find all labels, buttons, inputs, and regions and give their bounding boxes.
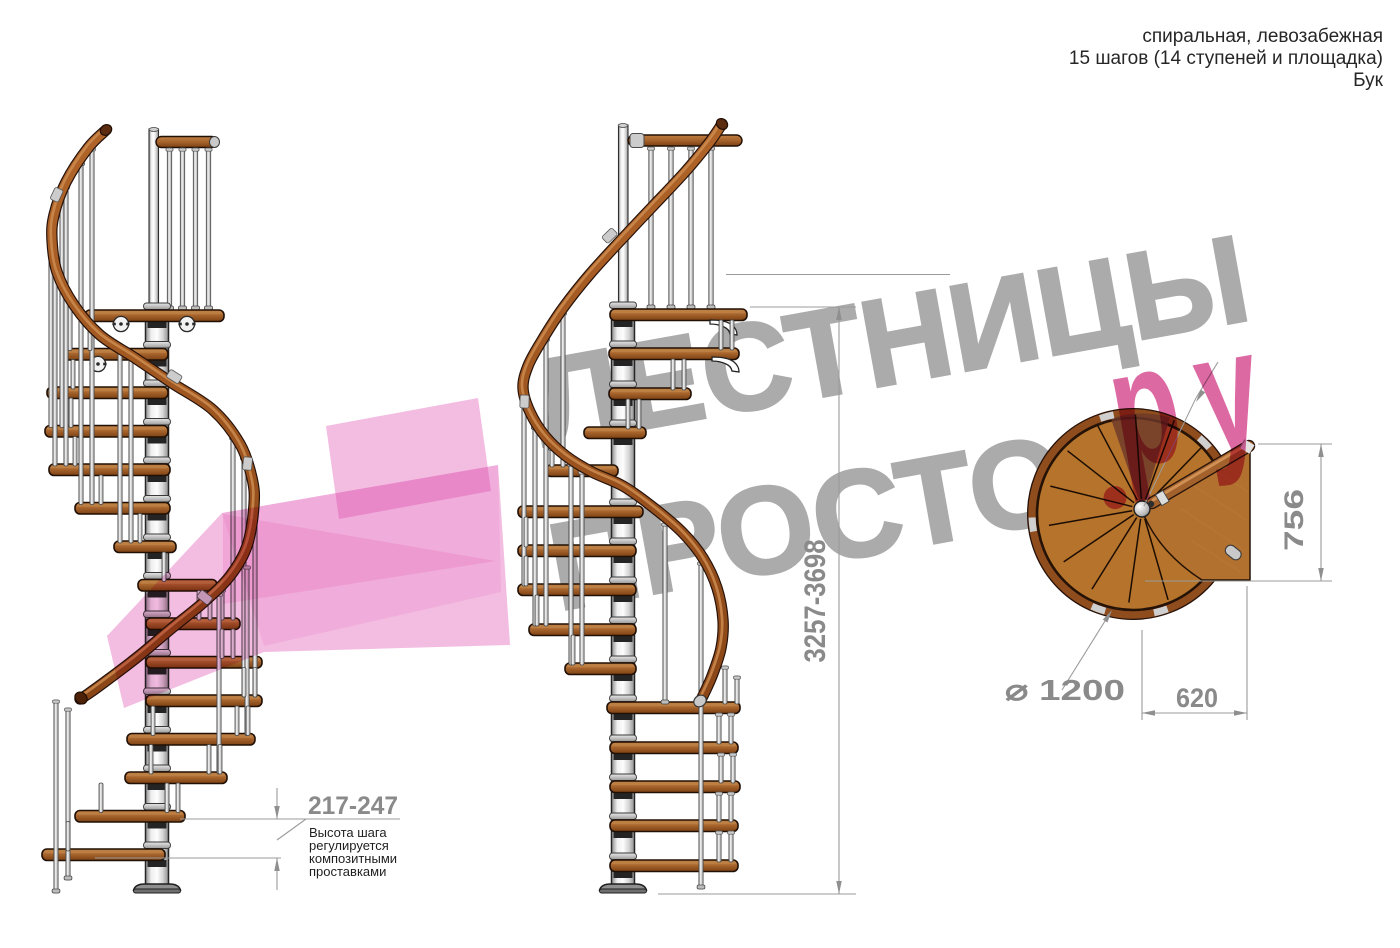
- svg-text:⌀ 1200: ⌀ 1200: [1005, 675, 1125, 707]
- svg-text:проставками: проставками: [309, 864, 386, 879]
- svg-text:620: 620: [1176, 683, 1218, 713]
- svg-text:217-247: 217-247: [308, 792, 398, 820]
- svg-text:756: 756: [1279, 489, 1309, 551]
- svg-text:15 шагов (14 ступеней и площад: 15 шагов (14 ступеней и площадка): [1069, 48, 1383, 69]
- svg-text:ру: ру: [1095, 290, 1296, 505]
- svg-text:3257-3698: 3257-3698: [799, 540, 832, 663]
- svg-text:Бук: Бук: [1353, 70, 1384, 91]
- svg-text:спиральная, левозабежная: спиральная, левозабежная: [1142, 26, 1383, 47]
